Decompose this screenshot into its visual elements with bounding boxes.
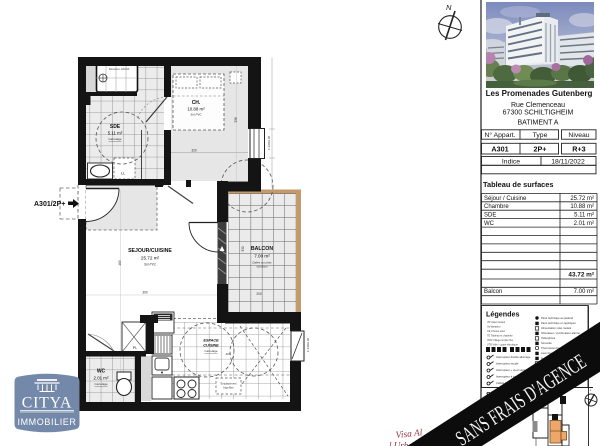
- svg-text:2.01 m²: 2.01 m²: [574, 221, 594, 227]
- svg-text:2P+: 2P+: [534, 145, 547, 154]
- svg-text:CH.: CH.: [192, 100, 201, 106]
- svg-text:330: 330: [241, 246, 245, 252]
- svg-text:Balcon: Balcon: [484, 289, 502, 295]
- svg-text:Type: Type: [533, 132, 548, 139]
- svg-text:390: 390: [142, 291, 148, 295]
- svg-text:BALCON: BALCON: [251, 246, 273, 252]
- svg-text:5.11 m²: 5.11 m²: [108, 131, 123, 136]
- svg-text:320: 320: [191, 149, 197, 153]
- svg-text:465: 465: [118, 260, 122, 266]
- svg-text:Interrupteur + va et vient: Interrupteur + va et vient: [496, 368, 525, 372]
- svg-text:VTB Vide / coupe électrique: VTB Vide / coupe électrique: [487, 344, 519, 347]
- svg-text:7.00 m²: 7.00 m²: [254, 254, 270, 259]
- svg-text:Sol PVC: Sol PVC: [190, 113, 202, 117]
- svg-text:A301: A301: [491, 145, 508, 154]
- svg-text:SEJOUR/CUISINE: SEJOUR/CUISINE: [128, 248, 172, 254]
- svg-text:Interrupteur simple: Interrupteur simple: [496, 362, 519, 366]
- svg-text:F-130/H.08: F-130/H.08: [306, 338, 310, 352]
- svg-text:Indice: Indice: [502, 159, 520, 166]
- svg-text:CE Chutes eaux: CE Chutes eaux: [487, 330, 506, 333]
- svg-text:5.11 m²: 5.11 m²: [574, 213, 594, 219]
- svg-text:A301/2P+: A301/2P+: [34, 201, 65, 208]
- svg-text:R+3: R+3: [572, 145, 585, 154]
- svg-text:Sol PVC: Sol PVC: [144, 263, 157, 267]
- svg-text:Carrelage: Carrelage: [204, 349, 218, 353]
- svg-text:43.72 m²: 43.72 m²: [568, 271, 594, 278]
- svg-text:Paroi technique au plafond: Paroi technique au plafond: [541, 316, 573, 320]
- svg-text:SDE: SDE: [484, 213, 496, 219]
- svg-text:Chambre: Chambre: [484, 204, 509, 210]
- svg-text:Les Promenades Gutenberg: Les Promenades Gutenberg: [486, 89, 593, 98]
- svg-text:WC: WC: [484, 221, 495, 227]
- svg-text:*: *: [590, 389, 592, 393]
- svg-text:403: 403: [225, 352, 230, 356]
- svg-text:N: N: [446, 3, 452, 12]
- svg-text:10.88 m²: 10.88 m²: [187, 107, 205, 112]
- svg-text:SDE: SDE: [110, 124, 121, 130]
- svg-text:Obturateur / combinateur alarm: Obturateur / combinateur alarme: [541, 331, 580, 335]
- svg-text:25.72 m²: 25.72 m²: [570, 196, 594, 202]
- svg-text:Carrelage: Carrelage: [108, 137, 122, 141]
- svg-text:F-120/H.08: F-120/H.08: [267, 136, 271, 150]
- svg-text:Tableau de surfaces: Tableau de surfaces: [483, 180, 554, 189]
- svg-text:Videophone: Videophone: [541, 336, 556, 340]
- svg-text:ESPACE: ESPACE: [203, 339, 219, 343]
- svg-text:CITYA: CITYA: [22, 395, 73, 412]
- svg-text:TE Tableau et d'attente: TE Tableau et d'attente: [487, 335, 513, 338]
- svg-text:Paroi technique en appliques: Paroi technique en appliques: [541, 321, 576, 325]
- svg-text:50x50cm: 50x50cm: [256, 265, 268, 269]
- svg-text:Rue Clemenceau: Rue Clemenceau: [511, 102, 565, 109]
- svg-text:Receveur 120x90: Receveur 120x90: [109, 67, 130, 71]
- svg-text:200: 200: [256, 292, 262, 296]
- svg-text:10.88 m²: 10.88 m²: [570, 204, 594, 210]
- svg-text:25.72 m²: 25.72 m²: [141, 256, 160, 261]
- svg-text:Sonnette: Sonnette: [541, 341, 552, 345]
- svg-text:Alimentation volet roulant: Alimentation volet roulant: [541, 326, 571, 330]
- svg-text:2.01 m²: 2.01 m²: [94, 376, 109, 381]
- svg-text:BATIMENT A: BATIMENT A: [518, 120, 559, 127]
- svg-text:338: 338: [234, 117, 238, 123]
- svg-text:Emplacement: Emplacement: [221, 382, 237, 386]
- svg-text:N° Appart.: N° Appart.: [484, 131, 515, 139]
- svg-text:Niveau: Niveau: [568, 132, 589, 139]
- svg-text:67300 SCHILTIGHEIM: 67300 SCHILTIGHEIM: [503, 110, 574, 117]
- svg-text:Carrelage: Carrelage: [94, 382, 108, 386]
- svg-text:VR Volet roulant: VR Volet roulant: [487, 321, 505, 324]
- svg-text:Interrupteur double allumage: Interrupteur double allumage: [496, 355, 531, 359]
- svg-text:VMC Villege simple flux: VMC Villege simple flux: [487, 339, 514, 342]
- svg-text:7.00 m²: 7.00 m²: [574, 289, 594, 295]
- svg-text:LL: LL: [121, 171, 126, 176]
- svg-text:Séjour / Cuisine: Séjour / Cuisine: [484, 196, 527, 202]
- svg-text:PL: PL: [133, 346, 137, 350]
- svg-text:Va Variateur: Va Variateur: [487, 326, 501, 329]
- svg-text:IMMOBILIER: IMMOBILIER: [17, 417, 76, 427]
- svg-text:frigo-Box: frigo-Box: [223, 386, 234, 390]
- svg-text:CUISINE: CUISINE: [203, 344, 219, 348]
- svg-text:WC: WC: [97, 369, 106, 375]
- svg-text:18/11/2022: 18/11/2022: [551, 159, 585, 166]
- svg-text:Légendes: Légendes: [486, 310, 520, 319]
